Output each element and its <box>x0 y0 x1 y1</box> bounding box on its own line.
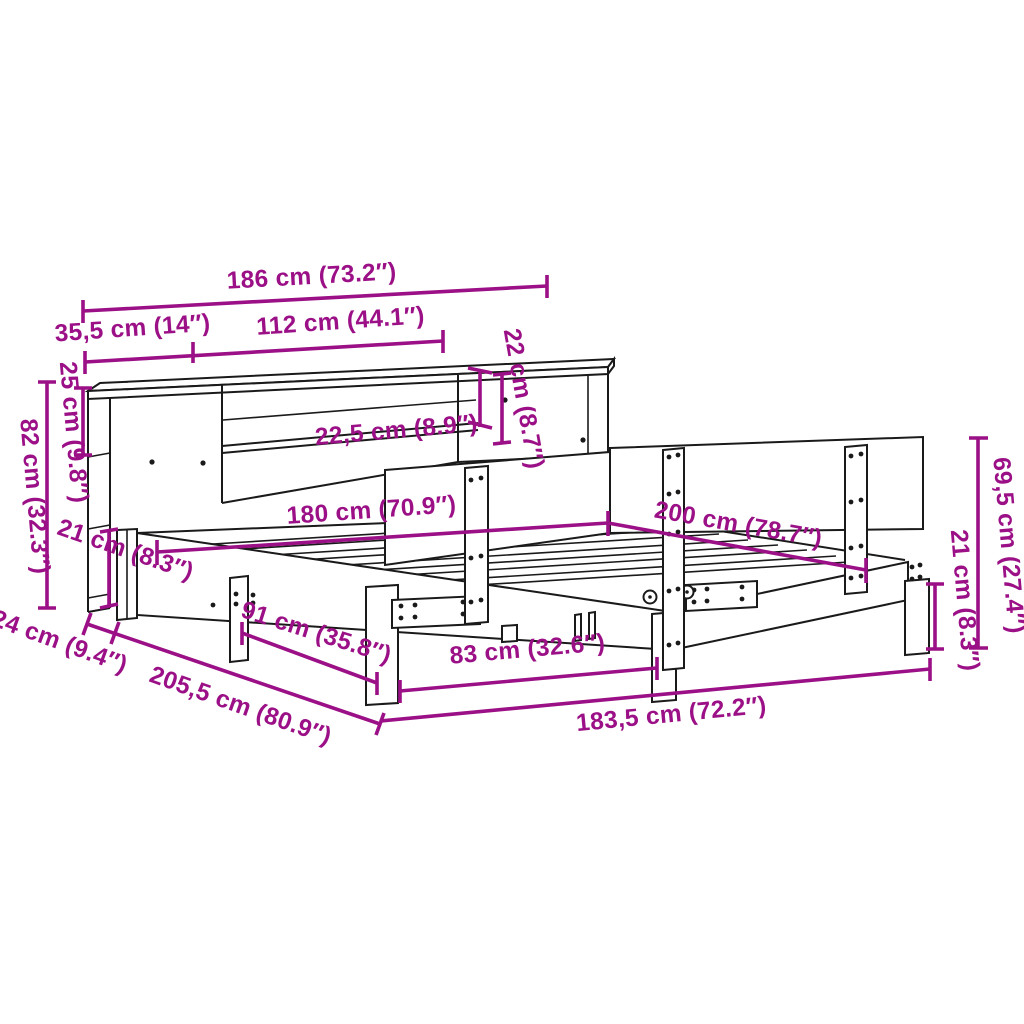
dimension-label-center-section-width: 112 cm (44.1″) <box>255 302 425 341</box>
diagram-page: 186 cm (73.2″) 35,5 cm (14″) 112 cm (44.… <box>0 0 1024 1024</box>
diagram-canvas: 186 cm (73.2″) 35,5 cm (14″) 112 cm (44.… <box>0 0 1024 1024</box>
dimension-label-panel-height: 69,5 cm (27.4″) <box>987 456 1024 635</box>
dimension-label-left-section-width: 35,5 cm (14″) <box>54 310 211 348</box>
dimension-label-shelf-depth: 22,5 cm (8.9″) <box>314 410 479 451</box>
dimension-headboard-total-height: 82 cm (32.3″) <box>14 382 56 608</box>
dimension-cubby-height: 25 cm (9.8″) <box>54 360 93 504</box>
dimension-label-cubby-height: 25 cm (9.8″) <box>54 360 93 504</box>
dimension-leg-height: 21 cm (8.3″) <box>926 528 984 672</box>
dimension-label-overall-width: 186 cm (73.2″) <box>226 258 397 294</box>
dimension-left-section-width: 35,5 cm (14″) 112 cm (44.1″) <box>54 302 443 374</box>
dimension-shelf-compartment-height: 22 cm (8.7″) <box>493 326 549 471</box>
